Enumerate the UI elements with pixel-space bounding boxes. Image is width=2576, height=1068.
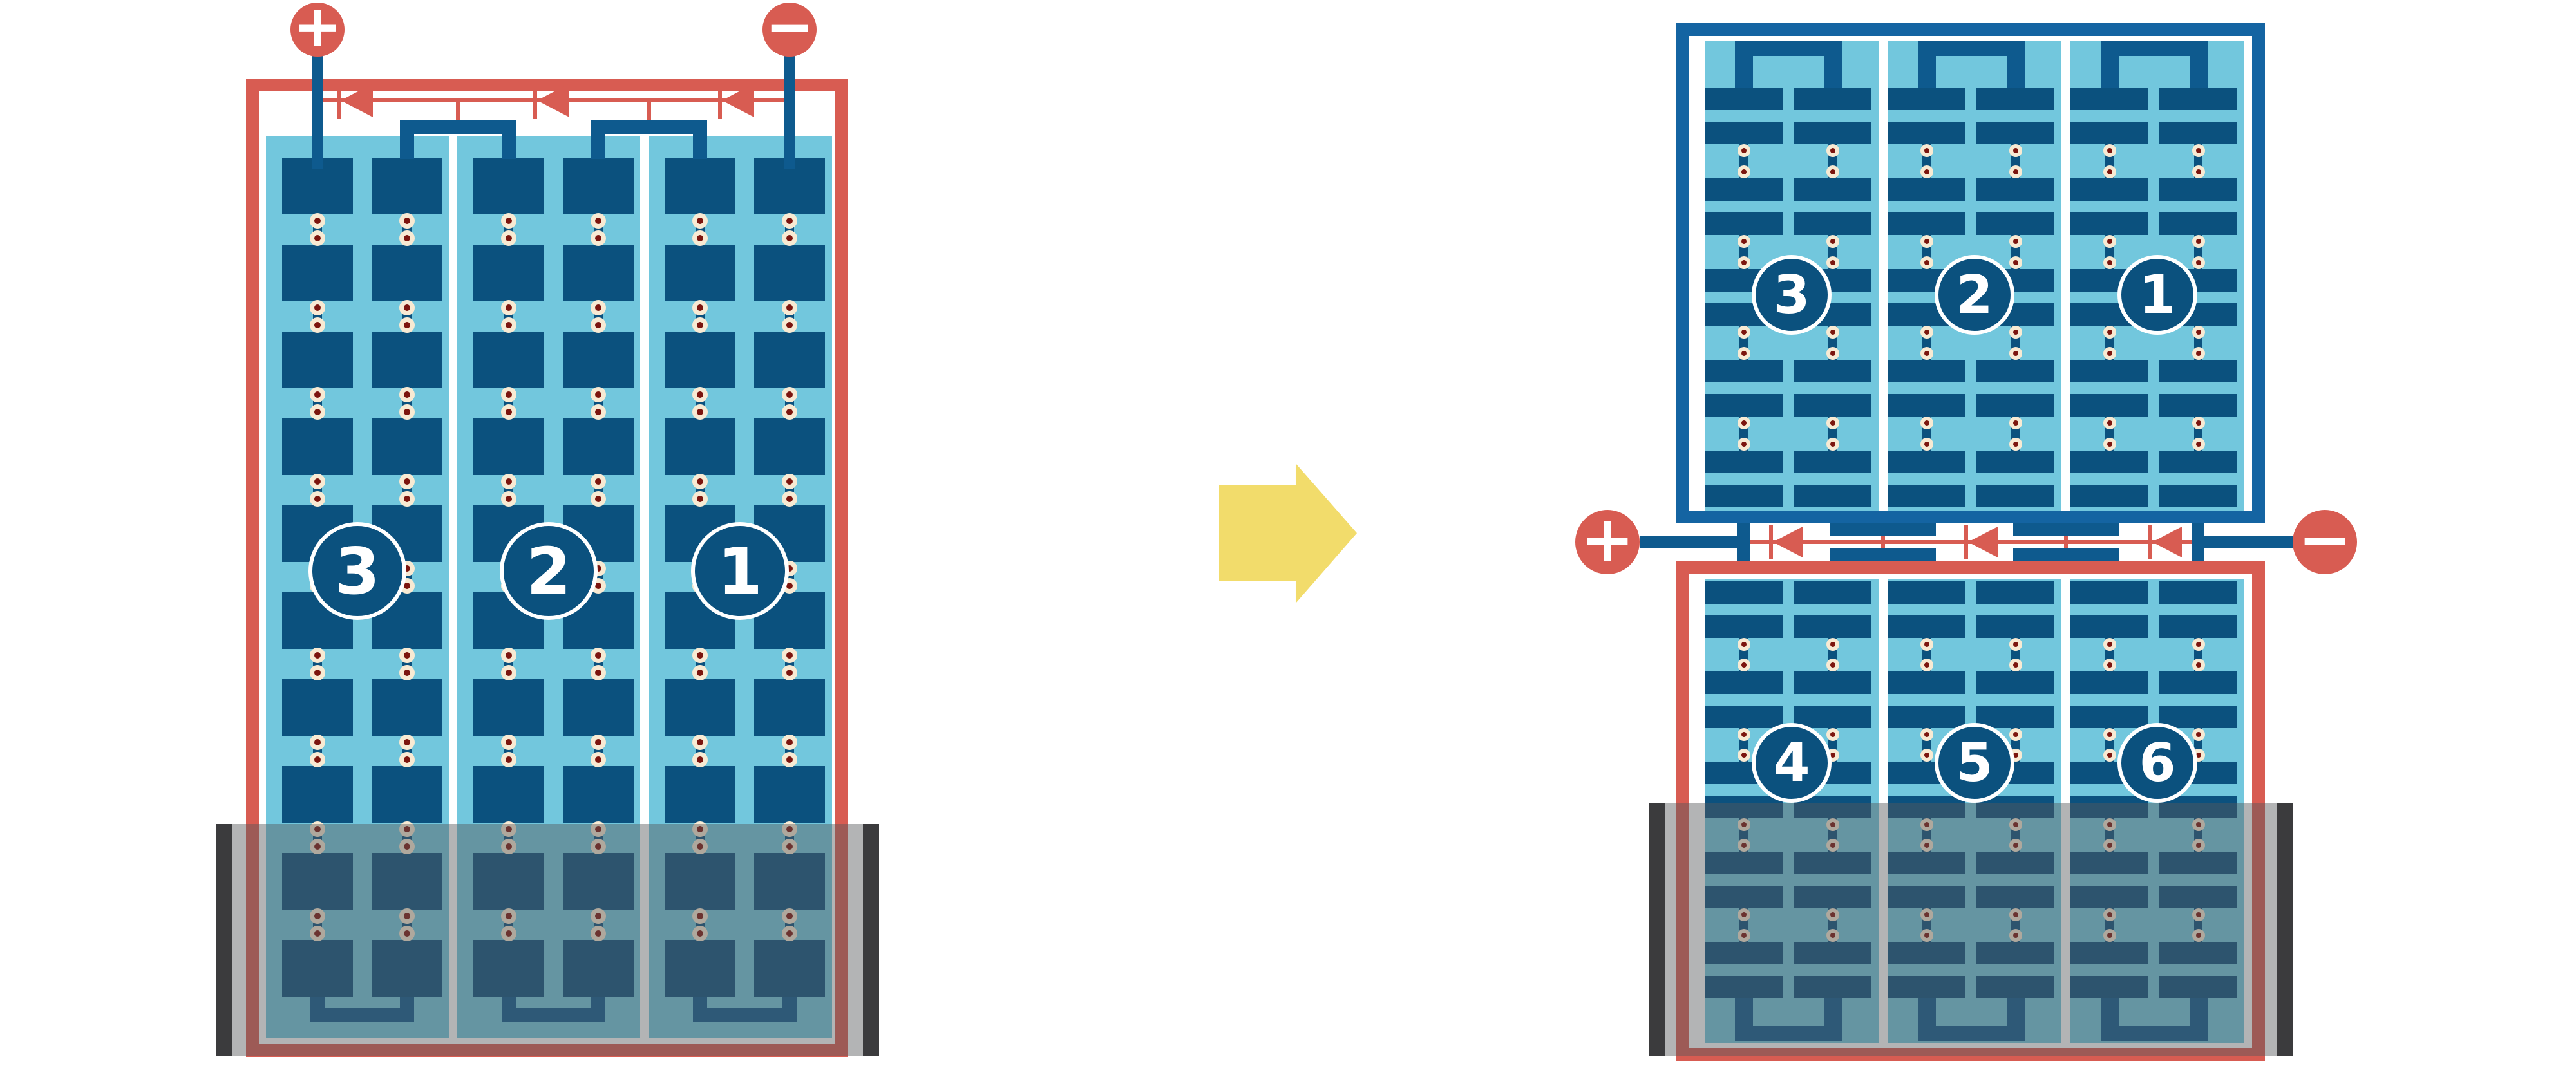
minus-icon: − bbox=[765, 0, 813, 56]
shading-bar bbox=[2277, 803, 2293, 1056]
series-jumper-top bbox=[591, 120, 707, 159]
shading-bar bbox=[863, 824, 879, 1056]
shading-overlay bbox=[1649, 803, 2293, 1056]
substring-badge: 5 bbox=[1935, 723, 2014, 803]
series-jumper-top bbox=[400, 120, 516, 159]
interconnect-tab bbox=[2013, 523, 2119, 536]
diode-triangle-icon bbox=[1773, 527, 1803, 557]
substring-number: 4 bbox=[1773, 733, 1810, 794]
substring-badge: 3 bbox=[308, 522, 406, 620]
terminal-bus bbox=[2204, 536, 2293, 548]
terminal-stem bbox=[2192, 523, 2204, 561]
minus-icon: − bbox=[2298, 507, 2352, 572]
diode-triangle-icon bbox=[341, 84, 373, 117]
substring-number: 1 bbox=[2139, 265, 2175, 326]
shading-bar bbox=[216, 824, 232, 1056]
substring-badge: 6 bbox=[2117, 723, 2197, 803]
left-positive-terminal: + bbox=[290, 3, 345, 57]
substring-number: 3 bbox=[335, 534, 380, 609]
right-positive-terminal: + bbox=[1575, 510, 1640, 574]
terminal-bus bbox=[1640, 536, 1737, 548]
diode-triangle-icon bbox=[722, 84, 754, 117]
interconnect-tab bbox=[1830, 548, 1936, 561]
right-negative-terminal: − bbox=[2293, 510, 2357, 574]
left-negative-terminal: − bbox=[762, 3, 817, 57]
diode-triangle-icon bbox=[537, 84, 569, 117]
diode-triangle-icon bbox=[2152, 527, 2182, 557]
diode-triangle-icon bbox=[1968, 527, 1998, 557]
substring-number: 5 bbox=[1956, 733, 1993, 794]
shading-bar bbox=[1649, 803, 1665, 1056]
substring-number: 1 bbox=[717, 534, 762, 609]
solar-module-shading-comparison-diagram: + − + − 3 2 1 3 2 1 4 5 6 bbox=[0, 0, 2576, 1068]
substring-badge: 1 bbox=[691, 522, 789, 620]
shading-overlay bbox=[216, 824, 879, 1056]
plus-icon: + bbox=[1580, 507, 1634, 572]
interconnect-tab bbox=[2013, 548, 2119, 561]
plus-icon: + bbox=[293, 0, 341, 56]
arrow-right-icon bbox=[1219, 464, 1357, 603]
terminal-stem bbox=[1737, 523, 1750, 561]
substring-badge: 2 bbox=[1935, 255, 2014, 335]
substring-badge: 4 bbox=[1752, 723, 1832, 803]
substring-badge: 2 bbox=[500, 522, 598, 620]
substring-badge: 1 bbox=[2117, 255, 2197, 335]
interconnect-tab bbox=[1830, 523, 1936, 536]
substring-number: 2 bbox=[1956, 265, 1993, 326]
substring-number: 6 bbox=[2139, 733, 2175, 794]
substring-badge: 3 bbox=[1752, 255, 1832, 335]
substring-number: 3 bbox=[1773, 265, 1810, 326]
substring-number: 2 bbox=[526, 534, 571, 609]
